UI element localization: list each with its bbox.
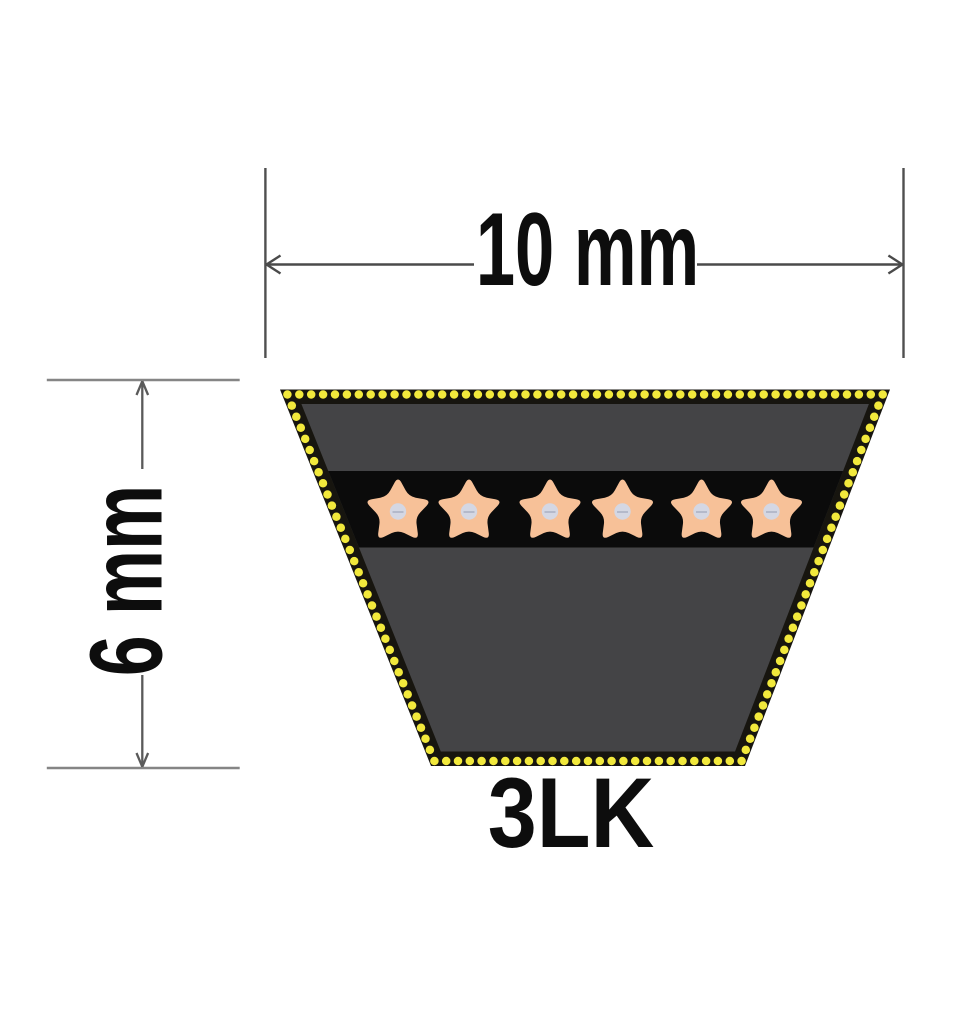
svg-text:10 mm: 10 mm [476, 191, 699, 307]
svg-text:3LK: 3LK [488, 757, 654, 868]
svg-text:6 mm: 6 mm [68, 485, 183, 676]
